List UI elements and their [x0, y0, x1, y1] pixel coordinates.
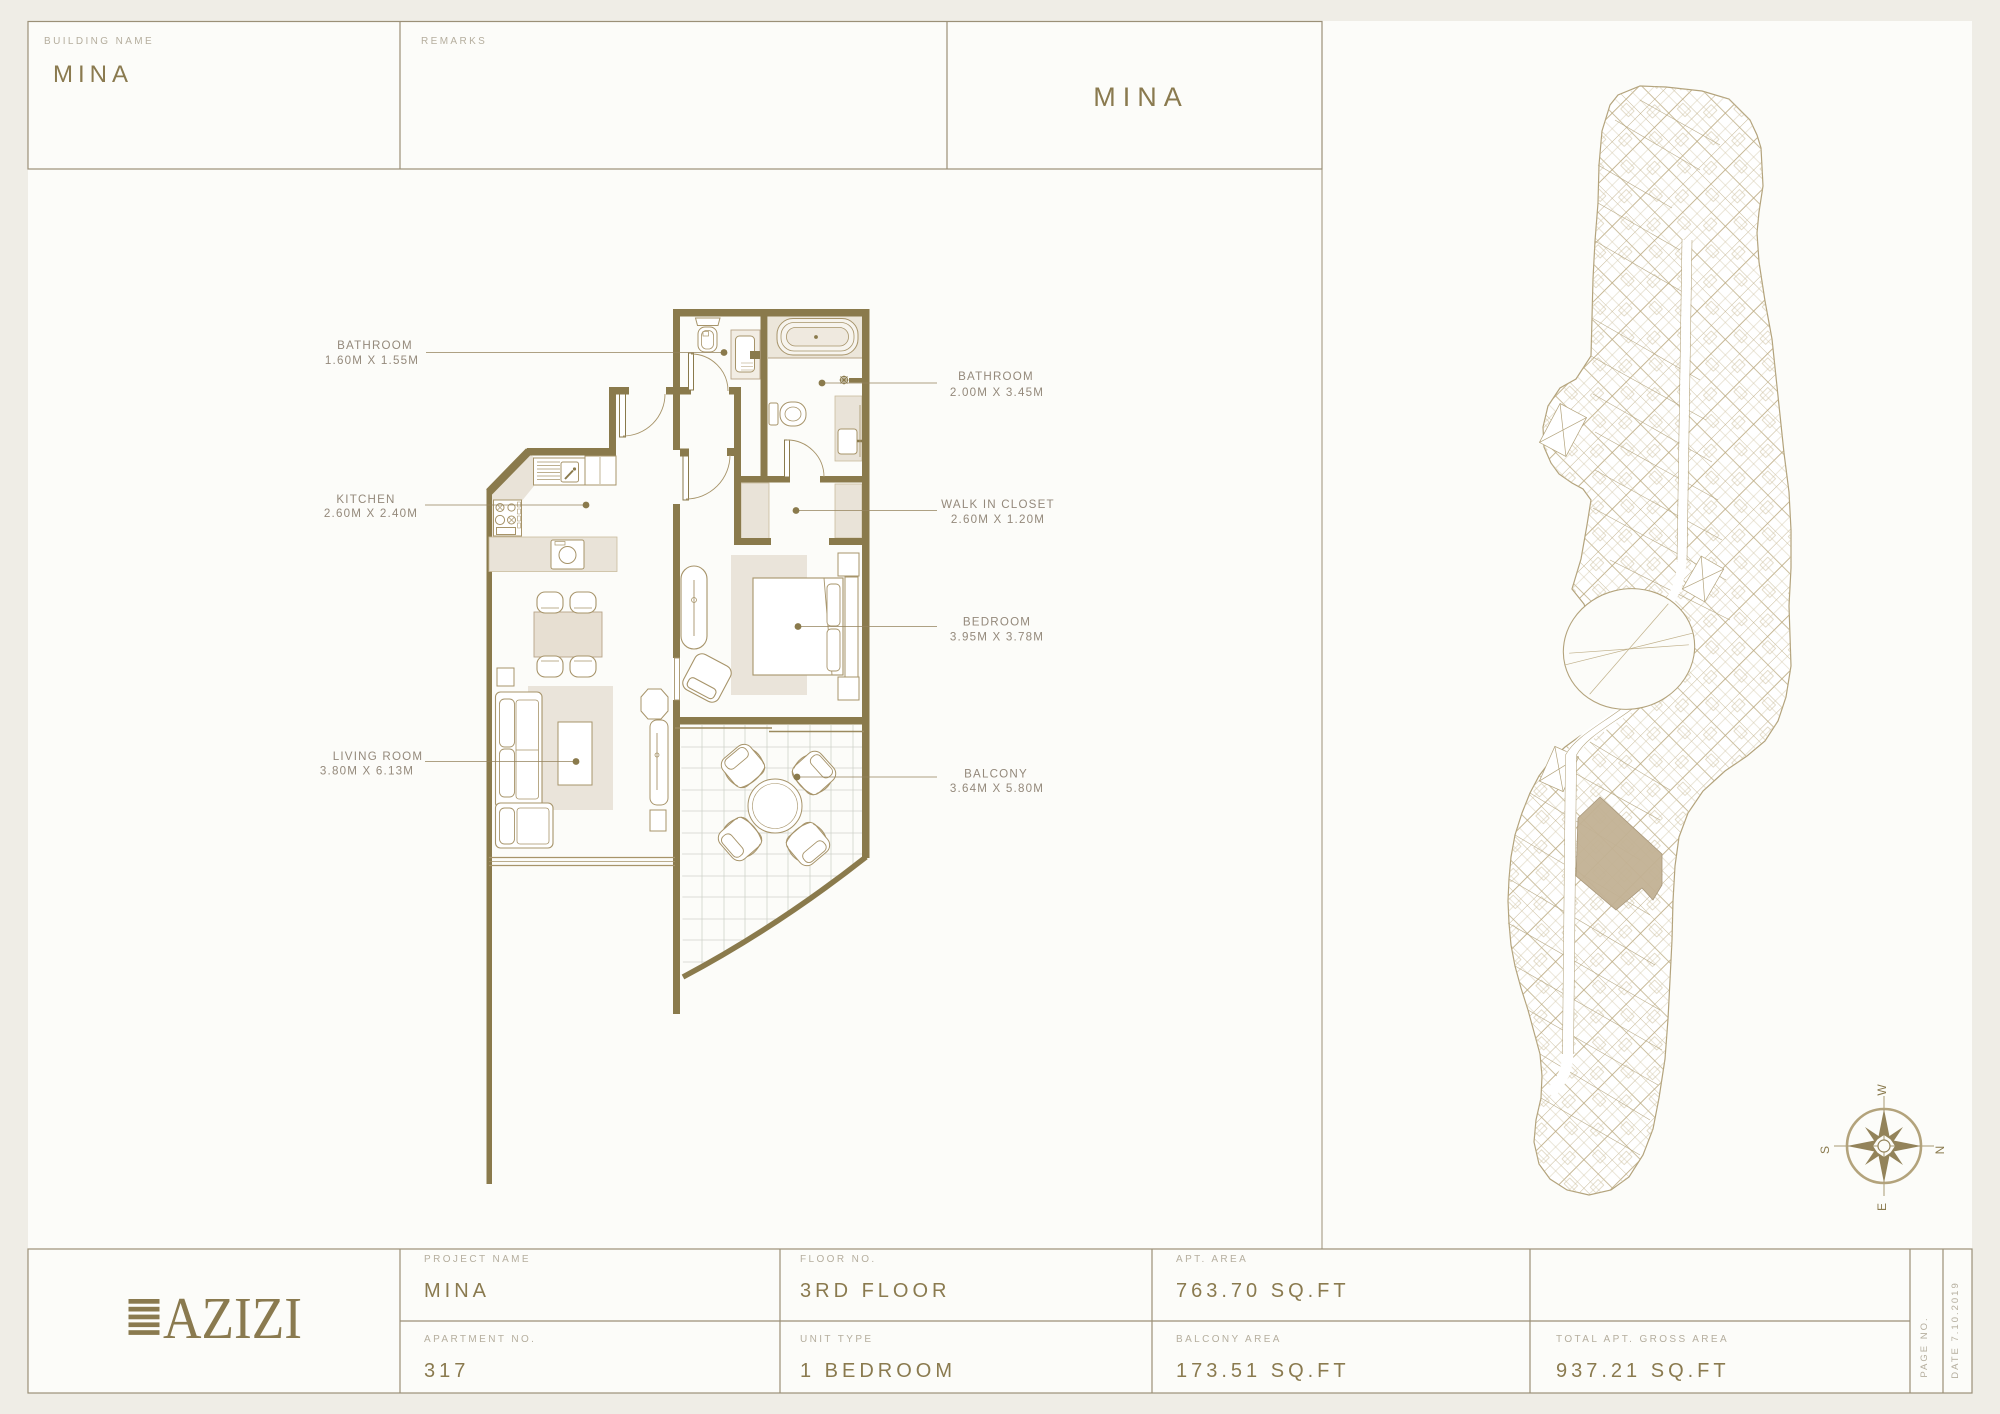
svg-text:3.95M X 3.78M: 3.95M X 3.78M [950, 631, 1044, 644]
svg-text:TOTAL APT. GROSS AREA: TOTAL APT. GROSS AREA [1556, 1334, 1729, 1345]
svg-text:3.64M X 5.80M: 3.64M X 5.80M [950, 782, 1044, 795]
svg-text:3.80M X 6.13M: 3.80M X 6.13M [320, 765, 414, 778]
svg-text:MINA: MINA [424, 1280, 490, 1302]
svg-text:S: S [1818, 1146, 1832, 1154]
svg-text:BALCONY AREA: BALCONY AREA [1176, 1334, 1282, 1345]
svg-text:BEDROOM: BEDROOM [963, 616, 1031, 629]
svg-text:LIVING ROOM: LIVING ROOM [333, 750, 424, 763]
svg-text:E: E [1875, 1203, 1889, 1211]
svg-text:1.60M X 1.55M: 1.60M X 1.55M [325, 354, 419, 367]
svg-text:FLOOR NO.: FLOOR NO. [800, 1254, 877, 1265]
svg-text:BATHROOM: BATHROOM [958, 370, 1034, 383]
svg-text:AZIZI: AZIZI [163, 1285, 302, 1351]
svg-text:WALK IN CLOSET: WALK IN CLOSET [941, 498, 1055, 511]
svg-text:W: W [1875, 1084, 1889, 1096]
svg-text:APT. AREA: APT. AREA [1176, 1254, 1248, 1265]
svg-text:173.51 SQ.FT: 173.51 SQ.FT [1176, 1360, 1350, 1382]
svg-text:N: N [1933, 1146, 1947, 1155]
svg-text:317: 317 [424, 1360, 469, 1382]
svg-text:KITCHEN: KITCHEN [336, 493, 395, 506]
svg-text:2.60M X 1.20M: 2.60M X 1.20M [951, 513, 1045, 526]
svg-text:MINA: MINA [53, 61, 133, 88]
svg-text:BATHROOM: BATHROOM [337, 339, 413, 352]
svg-text:763.70 SQ.FT: 763.70 SQ.FT [1176, 1280, 1350, 1302]
svg-text:PROJECT NAME: PROJECT NAME [424, 1254, 531, 1265]
svg-text:REMARKS: REMARKS [421, 36, 487, 47]
svg-text:937.21 SQ.FT: 937.21 SQ.FT [1556, 1360, 1730, 1382]
svg-text:MINA: MINA [1093, 82, 1189, 112]
svg-text:DATE 7.10.2019: DATE 7.10.2019 [1950, 1281, 1961, 1379]
svg-text:PAGE NO.: PAGE NO. [1919, 1316, 1930, 1377]
svg-text:2.00M X 3.45M: 2.00M X 3.45M [950, 386, 1044, 399]
svg-text:BALCONY: BALCONY [964, 768, 1028, 781]
svg-text:UNIT TYPE: UNIT TYPE [800, 1334, 873, 1345]
svg-text:1 BEDROOM: 1 BEDROOM [800, 1360, 956, 1382]
svg-text:3RD FLOOR: 3RD FLOOR [800, 1280, 950, 1302]
svg-text:APARTMENT NO.: APARTMENT NO. [424, 1334, 536, 1345]
svg-text:2.60M X 2.40M: 2.60M X 2.40M [324, 507, 418, 520]
svg-text:BUILDING NAME: BUILDING NAME [44, 36, 154, 47]
